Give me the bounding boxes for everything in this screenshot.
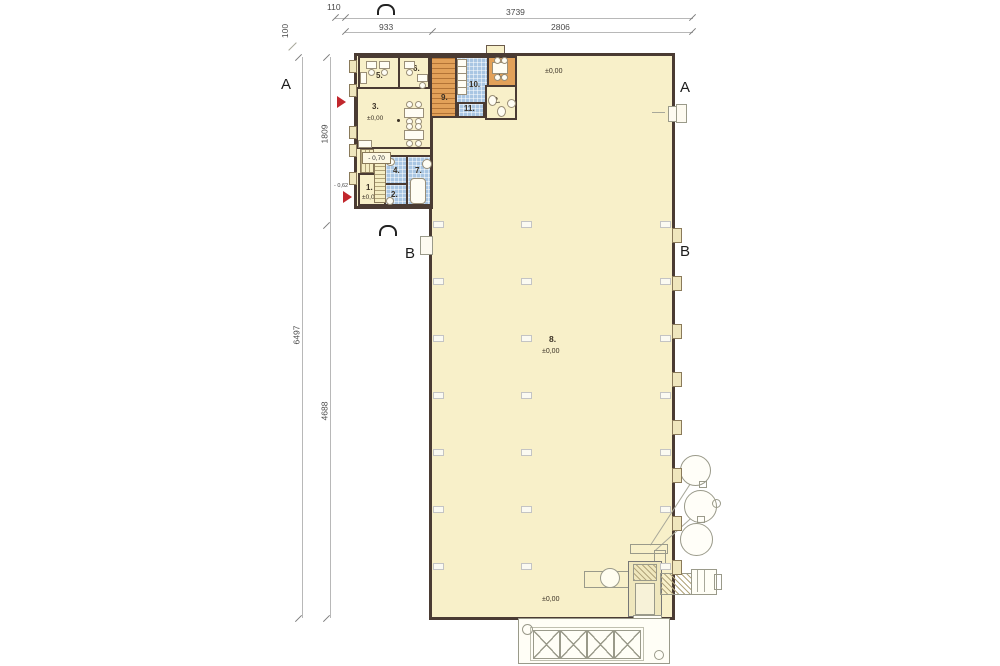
column-mark bbox=[660, 335, 671, 342]
chair-icon bbox=[415, 123, 422, 130]
column-mark bbox=[660, 392, 671, 399]
chair-icon bbox=[494, 74, 501, 81]
wc-icon bbox=[422, 159, 432, 169]
desk-icon bbox=[417, 74, 428, 82]
chair-icon bbox=[406, 140, 413, 147]
column-mark bbox=[433, 278, 444, 285]
column-mark bbox=[521, 506, 532, 513]
tank-connector bbox=[699, 481, 707, 488]
pilaster bbox=[672, 276, 682, 291]
dot-icon bbox=[397, 119, 400, 122]
chair-icon bbox=[415, 140, 422, 147]
conveyor-segment bbox=[533, 630, 560, 659]
pilaster bbox=[672, 516, 682, 531]
room-9-number: 9. bbox=[441, 93, 448, 102]
tank-3 bbox=[680, 523, 713, 556]
conveyor-wheel bbox=[654, 650, 664, 660]
elevation-label-minus070: - 0,70 bbox=[362, 152, 391, 164]
chair-icon bbox=[415, 101, 422, 108]
elevation-label-minus062: - 0,62 bbox=[334, 183, 348, 189]
conveyor-segment bbox=[560, 630, 587, 659]
column-mark bbox=[660, 563, 671, 570]
wc-icon bbox=[497, 106, 506, 117]
column-mark bbox=[521, 278, 532, 285]
entrance-arrow-icon bbox=[343, 191, 352, 203]
chair-icon bbox=[406, 69, 413, 76]
mixer-joint bbox=[600, 568, 620, 588]
column-mark bbox=[521, 335, 532, 342]
chair-icon bbox=[501, 57, 508, 64]
column-mark bbox=[521, 563, 532, 570]
tank-connector bbox=[697, 516, 705, 523]
room-3-elevation: ±0,00 bbox=[367, 115, 383, 122]
door-left-wall bbox=[420, 236, 433, 255]
wing-pilaster bbox=[349, 84, 357, 97]
pilaster bbox=[672, 560, 682, 575]
tank-valve bbox=[712, 499, 721, 508]
wing-pilaster bbox=[349, 144, 357, 157]
column-mark bbox=[660, 278, 671, 285]
column-mark bbox=[660, 221, 671, 228]
truck-dock-line bbox=[704, 570, 705, 592]
machine-hopper bbox=[633, 564, 657, 581]
room-11: 11. bbox=[457, 102, 485, 118]
pilaster bbox=[672, 372, 682, 387]
hall-elevation: ±0,00 bbox=[542, 348, 559, 355]
wing-pilaster bbox=[349, 126, 357, 139]
truck-dock-line bbox=[697, 570, 698, 592]
floor-plan-canvas: 110 3739 933 2806 6497 1809 4688 100 A A… bbox=[0, 0, 1000, 666]
column-mark bbox=[521, 221, 532, 228]
room-11-number: 11. bbox=[464, 104, 475, 113]
chair-icon bbox=[419, 82, 426, 89]
door-right-wall-leaf bbox=[676, 104, 687, 123]
chair-icon bbox=[501, 74, 508, 81]
desk-icon bbox=[404, 61, 415, 69]
desk-icon bbox=[404, 130, 424, 140]
chair-icon bbox=[381, 69, 388, 76]
rooms-layer: 3.±0,005.6.1.±0,004.2.7.9.10.11.13.12. bbox=[0, 0, 1000, 666]
desk-icon bbox=[404, 108, 424, 118]
column-mark bbox=[521, 392, 532, 399]
chair-icon bbox=[368, 69, 375, 76]
wc-icon bbox=[488, 95, 497, 106]
wing-pilaster bbox=[349, 60, 357, 73]
wing-pilaster bbox=[349, 172, 357, 185]
hall-room-number: 8. bbox=[549, 334, 556, 344]
room-1-number: 1. bbox=[366, 183, 373, 192]
stair-treads-lower bbox=[374, 161, 386, 203]
tub-icon bbox=[410, 178, 426, 204]
room-10-number: 10. bbox=[469, 80, 480, 89]
conveyor-wheel bbox=[522, 624, 533, 635]
locker-icon bbox=[457, 87, 467, 95]
sink-icon bbox=[507, 99, 516, 108]
conveyor-segment bbox=[614, 630, 641, 659]
truck-dock-cap bbox=[714, 574, 722, 590]
cab-icon bbox=[358, 140, 372, 148]
pilaster bbox=[672, 420, 682, 435]
column-mark bbox=[521, 449, 532, 456]
outfeed-duct bbox=[660, 573, 692, 595]
column-mark bbox=[433, 335, 444, 342]
column-mark bbox=[433, 563, 444, 570]
chair-icon bbox=[494, 57, 501, 64]
desk-icon bbox=[379, 61, 390, 69]
chair-icon bbox=[406, 123, 413, 130]
cab-icon bbox=[360, 72, 367, 84]
conveyor-segment bbox=[587, 630, 614, 659]
room-7-number: 7. bbox=[415, 166, 422, 175]
column-mark bbox=[433, 392, 444, 399]
pilaster bbox=[672, 228, 682, 243]
room-4-number: 4. bbox=[393, 166, 400, 175]
chair-icon bbox=[406, 101, 413, 108]
hall-elevation-bottom: ±0,00 bbox=[542, 596, 559, 603]
machine-inner bbox=[635, 583, 655, 615]
door-arrow bbox=[652, 112, 665, 113]
column-mark bbox=[660, 449, 671, 456]
pilaster bbox=[672, 468, 682, 483]
pilaster bbox=[672, 324, 682, 339]
entrance-arrow-icon bbox=[337, 96, 346, 108]
column-mark bbox=[660, 506, 671, 513]
room-9: 9. bbox=[430, 56, 457, 118]
column-mark bbox=[433, 506, 444, 513]
column-mark bbox=[433, 449, 444, 456]
column-mark bbox=[433, 221, 444, 228]
desk-icon bbox=[366, 61, 377, 69]
room-3-number: 3. bbox=[372, 102, 379, 111]
hall-elevation-top: ±0,00 bbox=[545, 68, 562, 75]
sink-icon bbox=[386, 197, 394, 205]
